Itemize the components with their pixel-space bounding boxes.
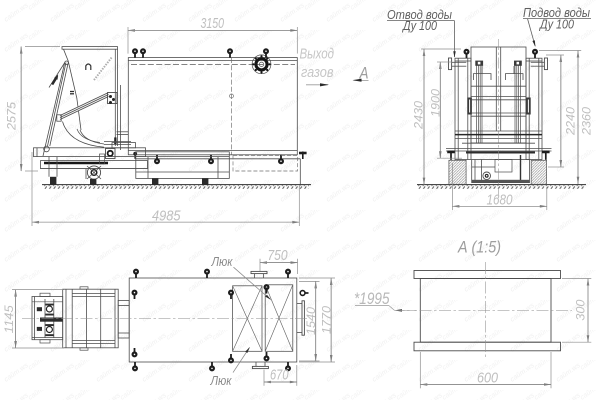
svg-text:Люк: Люк	[210, 374, 233, 388]
svg-text:Люк: Люк	[211, 255, 234, 269]
svg-text:1145: 1145	[2, 305, 16, 333]
svg-text:2575: 2575	[4, 102, 18, 131]
svg-text:*1995: *1995	[354, 290, 390, 308]
svg-text:670: 670	[270, 367, 289, 384]
svg-text:1680: 1680	[487, 191, 514, 208]
svg-text:4985: 4985	[152, 207, 181, 224]
svg-text:3150: 3150	[201, 15, 225, 32]
svg-text:1900: 1900	[428, 89, 442, 117]
svg-text:750: 750	[268, 247, 289, 264]
svg-text:300: 300	[574, 299, 588, 320]
svg-text:газов: газов	[301, 64, 334, 81]
svg-text:2430: 2430	[412, 101, 426, 130]
svg-text:А (1:5): А (1:5)	[457, 237, 501, 256]
svg-text:2360: 2360	[580, 107, 594, 136]
svg-text:1540: 1540	[304, 307, 318, 335]
svg-text:2240: 2240	[564, 107, 578, 136]
svg-text:1770: 1770	[319, 306, 333, 334]
svg-text:А: А	[359, 63, 369, 82]
svg-text:600: 600	[477, 369, 499, 386]
svg-text:Выход: Выход	[300, 45, 335, 62]
